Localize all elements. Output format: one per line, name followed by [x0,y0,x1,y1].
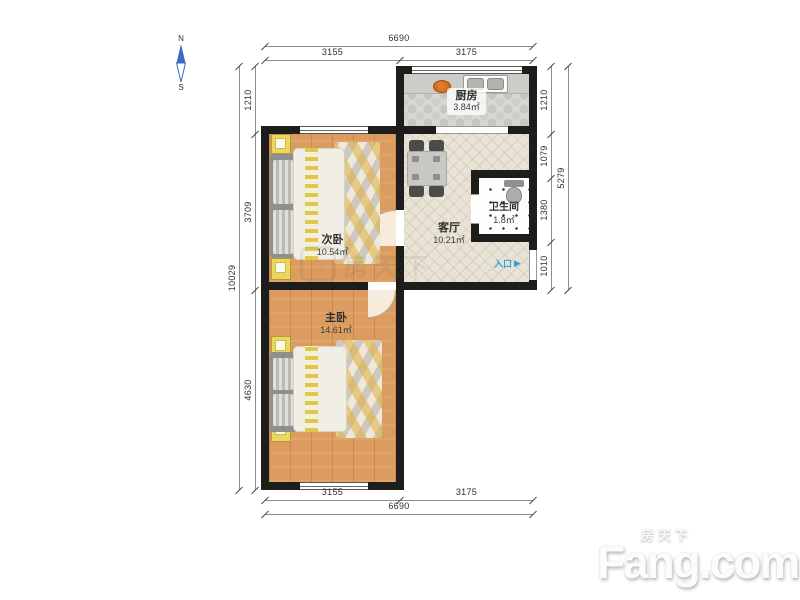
dining-chair [409,185,424,197]
kitchen-area: 3.84㎡ [453,102,480,113]
pillow [273,358,293,390]
wall-bathroom-left-upper [471,170,479,194]
master-bedroom-label: 主卧 14.61㎡ [269,312,403,336]
dim-top-total: 6690 [265,33,533,43]
bathroom-door-gap [471,194,479,224]
bed-duvet [293,346,347,432]
second-bedroom-window [300,126,368,134]
kitchen-window [412,66,522,74]
floor-plan-canvas: 厨房 3.84㎡ 次卧 10.54㎡ 客厅 10.21㎡ 卫生间 1.8㎡ 主卧… [0,0,800,600]
bathroom-label: 卫生间 1.8㎡ [479,202,529,226]
dimension-line [255,66,256,490]
compass: N S [172,34,190,92]
dim-top-left: 3155 [265,47,400,57]
dining-chair [429,185,444,197]
bathroom-area: 1.8㎡ [493,215,515,226]
place-setting [433,174,440,180]
wall-bathroom-top [471,170,537,178]
entrance-label: 入口 [494,257,512,270]
wall-mid-right [396,282,537,290]
north-arrow-icon [174,43,188,83]
dim-left-seg2: 3709 [243,201,253,222]
wall-divider-upper [396,126,404,210]
dim-left-total: 10029 [227,265,237,292]
bed-runner [305,346,318,432]
wall-kitchen-bottom-right [508,126,537,134]
second-bedroom-name: 次卧 [322,234,344,246]
nightstand [271,258,291,280]
dim-right-seg2: 1079 [539,145,549,166]
fang-logo-en: Fang.com [597,535,798,589]
dim-bottom-left: 3155 [265,487,400,497]
nightstand [271,134,291,154]
entrance-door-gap [529,250,537,280]
kitchen-name: 厨房 [456,90,478,102]
dim-bottom-right: 3175 [400,487,533,497]
wall-mid-left [261,282,368,290]
center-watermark-text: 房天下 [344,247,434,282]
master-bedroom-name: 主卧 [325,312,347,324]
dim-right-seg4: 1010 [539,255,549,276]
dim-right-seg1: 1210 [539,89,549,110]
dim-bottom-total: 6690 [265,501,533,511]
dim-left-seg1: 1210 [243,89,253,110]
dimension-line [239,66,240,490]
kitchen-label-box: 厨房 3.84㎡ [447,88,486,115]
place-setting [412,174,419,180]
entrance-marker: 入口 ▶ [494,257,521,270]
wall-kitchen-left [396,66,404,134]
place-setting [412,156,419,162]
master-bedroom-area: 14.61㎡ [320,325,352,336]
compass-north-label: N [178,34,184,43]
dim-top-right: 3175 [400,47,533,57]
center-watermark: ⌂ 房天下 [300,246,434,282]
wall-right-upper [529,66,537,250]
house-watermark-icon: ⌂ [300,246,336,282]
kitchen-opening [436,126,508,134]
master-door-gap [368,282,396,290]
living-room-name: 客厅 [438,222,460,234]
dimension-line [568,66,569,290]
dim-right-total: 5279 [556,167,566,188]
compass-south-label: S [178,83,183,92]
wall-left [261,126,269,490]
place-setting [433,156,440,162]
toilet-tank [504,180,524,187]
bathroom-name: 卫生间 [489,202,519,214]
dimension-line [265,514,533,515]
pillow [273,394,293,426]
dim-left-seg3: 4630 [243,379,253,400]
dim-right-seg3: 1380 [539,199,549,220]
kitchen-label: 厨房 3.84㎡ [404,88,529,115]
second-bedroom-door-gap [396,210,404,246]
entrance-arrow-icon: ▶ [514,258,521,269]
living-room-area: 10.21㎡ [433,235,465,246]
pillow [273,160,293,204]
